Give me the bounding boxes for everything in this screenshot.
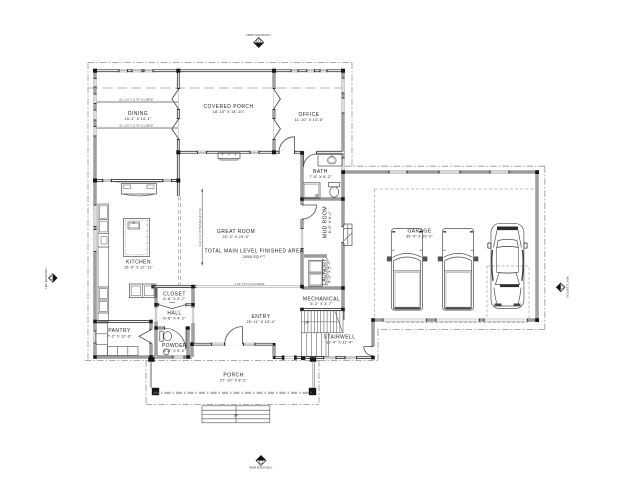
svg-text:RIGHT ELEVATION 1: RIGHT ELEVATION 1	[566, 276, 569, 299]
svg-text:6'-8" X 4'-2": 6'-8" X 4'-2"	[163, 317, 186, 321]
svg-text:PORCH: PORCH	[223, 373, 243, 379]
svg-text:KITCHEN: KITCHEN	[126, 260, 151, 266]
svg-text:6'-3" X 5'-0": 6'-3" X 5'-0"	[163, 349, 186, 353]
svg-text:(2) 1 3/4" X 11 7/8" LVL BEAM: (2) 1 3/4" X 11 7/8" LVL BEAM	[119, 98, 153, 101]
svg-text:15'-9" X 12'-11": 15'-9" X 12'-11"	[124, 266, 153, 270]
svg-text:GREAT ROOM: GREAT ROOM	[217, 229, 255, 235]
svg-text:REAR ELEVATION 1: REAR ELEVATION 1	[249, 467, 273, 470]
svg-text:DINING: DINING	[128, 111, 148, 117]
svg-text:LEFT ELEVATION 1: LEFT ELEVATION 1	[45, 267, 48, 288]
svg-text:2056 SQ FT: 2056 SQ FT	[243, 255, 266, 259]
svg-text:UP: UP	[234, 414, 239, 418]
svg-text:(2) 1 3/4" X 11 7/8" LVL BEAM: (2) 1 3/4" X 11 7/8" LVL BEAM	[119, 124, 153, 127]
svg-text:11'-10" X 14'-6": 11'-10" X 14'-6"	[294, 118, 323, 122]
svg-text:FRONT ELEVATION 1: FRONT ELEVATION 1	[246, 34, 271, 37]
svg-text:ENTRY: ENTRY	[251, 314, 270, 320]
svg-text:18'-10" X 14'-10": 18'-10" X 14'-10"	[213, 110, 245, 114]
svg-text:6'-8" X 2'-7": 6'-8" X 2'-7"	[163, 297, 186, 301]
svg-text:35'-0" X 25'-0": 35'-0" X 25'-0"	[406, 235, 433, 239]
svg-text:27'-10" X 8'-2": 27'-10" X 8'-2"	[220, 379, 247, 383]
svg-text:COVERED PORCH: COVERED PORCH	[203, 104, 253, 110]
svg-text:7'-5" X 6'-2": 7'-5" X 6'-2"	[309, 175, 332, 179]
svg-text:OFFICE: OFFICE	[298, 112, 319, 118]
svg-text:20'-11" X 10'-4": 20'-11" X 10'-4"	[246, 320, 275, 324]
svg-text:5 1/2" X 15" FLUSH BEAM: 5 1/2" X 15" FLUSH BEAM	[235, 283, 265, 286]
svg-text:TOTAL MAIN LEVEL FINISHED AREA: TOTAL MAIN LEVEL FINISHED AREA	[204, 249, 303, 255]
svg-text:7'-2" X 12'-6": 7'-2" X 12'-6"	[107, 334, 132, 338]
svg-text:2 1/2 X 10 7/8 TRUSSES @ 4" OC: 2 1/2 X 10 7/8 TRUSSES @ 4" OC	[200, 208, 202, 247]
svg-text:6'-2" X 5'-7": 6'-2" X 5'-7"	[328, 260, 332, 283]
svg-text:22'-3" X 24'-3": 22'-3" X 24'-3"	[223, 235, 250, 239]
svg-text:UP: UP	[304, 320, 310, 324]
svg-text:6'-2" X 3'-7": 6'-2" X 3'-7"	[310, 302, 333, 306]
svg-text:PANTRY: PANTRY	[108, 328, 131, 334]
svg-text:12'-4" X 11'-4": 12'-4" X 11'-4"	[326, 341, 353, 345]
svg-text:6'-5" X 6'-1": 6'-5" X 6'-1"	[328, 210, 332, 233]
svg-text:15'-1" X 14'-1": 15'-1" X 14'-1"	[125, 117, 152, 121]
